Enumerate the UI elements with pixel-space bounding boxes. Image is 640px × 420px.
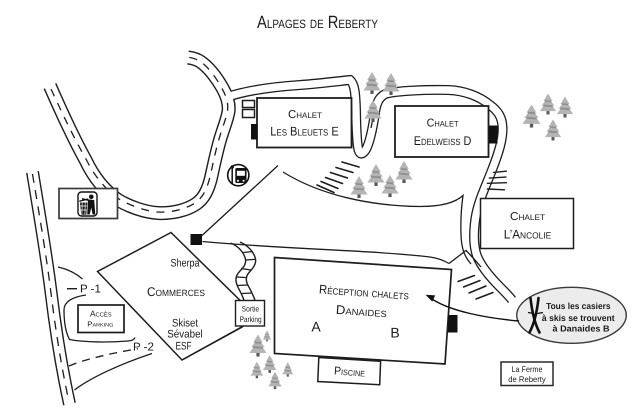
svg-text:L’Ancolie: L’Ancolie	[504, 227, 552, 241]
svg-text:à skis se trouvent: à skis se trouvent	[542, 313, 615, 323]
svg-text:Chalet: Chalet	[427, 117, 459, 129]
svg-text:Piscine: Piscine	[334, 365, 366, 379]
svg-text:Les Bleuets E: Les Bleuets E	[270, 125, 339, 139]
svg-text:à Danaides B: à Danaides B	[553, 324, 610, 334]
svg-text:Sévabel: Sévabel	[167, 329, 203, 341]
svg-text:P -1: P -1	[80, 283, 101, 295]
svg-text:Parking: Parking	[87, 320, 113, 329]
svg-text:Accès: Accès	[90, 308, 112, 318]
svg-text:La Ferme: La Ferme	[512, 365, 543, 374]
svg-text:Skiset: Skiset	[172, 317, 198, 329]
svg-text:Sherpa: Sherpa	[171, 258, 201, 270]
svg-text:Sortie: Sortie	[242, 305, 260, 314]
svg-text:Commerces: Commerces	[147, 285, 205, 299]
svg-text:Alpages de Reberty: Alpages de Reberty	[257, 12, 378, 32]
svg-text:Tous les casiers: Tous les casiers	[546, 301, 610, 311]
svg-text:Chalet: Chalet	[288, 109, 322, 121]
svg-text:A: A	[311, 319, 321, 335]
svg-text:B: B	[390, 325, 399, 341]
svg-text:Chalet: Chalet	[510, 211, 545, 223]
svg-text:ESF: ESF	[176, 341, 192, 353]
svg-text:Parking: Parking	[240, 315, 262, 324]
svg-text:Edelweiss D: Edelweiss D	[414, 134, 472, 148]
svg-text:de Reberty: de Reberty	[508, 375, 546, 384]
svg-text:P -2: P -2	[133, 342, 154, 354]
